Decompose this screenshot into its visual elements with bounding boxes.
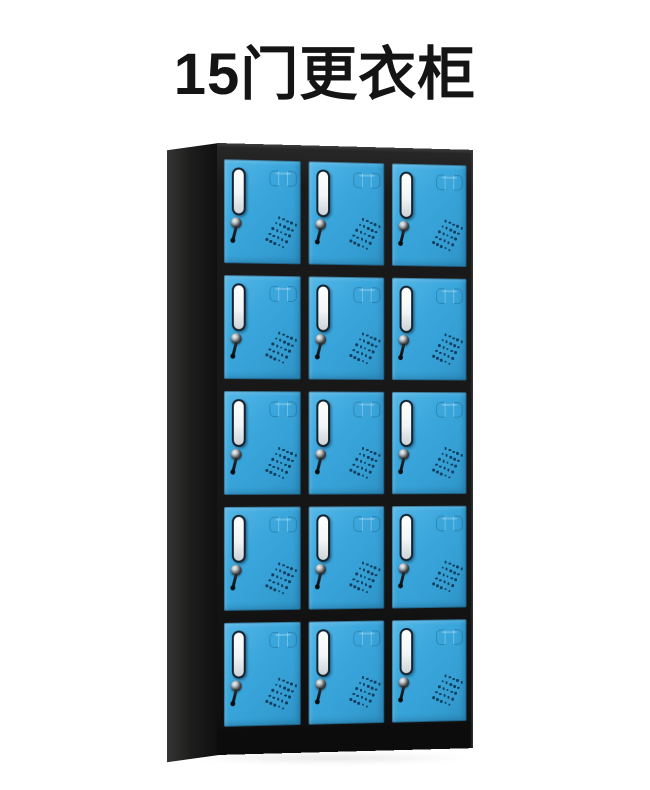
vent-hole-dot [282,333,284,336]
vent-hole-dot [270,471,272,473]
vent-hole-dot [443,581,445,583]
vent-hole-dot [450,690,452,693]
vent-hole-dot [369,471,371,473]
handle-right-bracket-icon [371,173,381,189]
vent-hole-dot [283,341,285,344]
vent-hole-dot [371,687,373,690]
vent-hole-dot [443,240,445,242]
vent-holes [265,332,298,366]
vent-hole-dot [362,245,364,248]
label-slot [400,628,413,675]
vent-hole-dot [270,356,272,359]
vent-hole-dot [349,698,351,701]
vent-hole-dot [453,344,455,346]
vent-hole-dot [358,473,360,475]
vent-hole-dot [269,579,271,582]
vent-hole-dot [368,578,370,580]
vent-hole-dot [278,705,280,708]
vent-hole-dot [442,346,444,348]
vent-hole-dot [370,336,372,338]
label-card [402,288,412,331]
vent-hole-dot [362,676,364,679]
label-card [402,516,412,559]
vent-hole-dot [282,707,284,710]
vent-hole-dot [378,225,380,228]
vent-hole-dot [364,347,366,349]
vent-hole-dot [280,231,282,234]
vent-holes [349,218,382,252]
vent-hole-dot [294,224,296,227]
vent-hole-dot [446,234,448,236]
vent-hole-dot [451,471,453,473]
label-card [318,631,328,675]
recessed-handle-icon [436,288,463,306]
vent-hole-dot [279,454,281,456]
label-slot [400,400,413,447]
vent-hole-dot [442,460,444,462]
vent-hole-dot [364,233,366,236]
vent-hole-dot [284,694,286,697]
vent-hole-dot [435,464,437,466]
vent-hole-dot [276,575,278,578]
key-icon [399,343,405,358]
vent-hole-dot [274,704,276,707]
handle-left-bracket-icon [436,629,446,645]
vent-hole-dot [359,223,361,226]
vent-hole-dot [443,467,445,469]
label-card [234,401,244,445]
locker-cabinet [167,140,483,768]
vent-hole-dot [290,683,292,686]
vent-hole-dot [353,356,355,358]
vent-holes [265,562,298,596]
vent-hole-dot [285,471,287,473]
vent-hole-dot [269,348,271,351]
vent-hole-dot [359,338,361,340]
vent-hole-dot [282,361,284,364]
label-card [318,286,328,330]
vent-hole-dot [360,689,362,692]
handle-left-bracket-icon [436,174,446,190]
vent-hole-dot [365,698,367,701]
vent-hole-dot [441,225,443,227]
vent-hole-dot [446,575,448,577]
vent-hole-dot [274,242,276,245]
vent-hole-dot [457,346,459,348]
vent-hole-dot [356,343,358,345]
vent-hole-dot [369,242,371,245]
vent-hole-dot [283,571,285,574]
locker-door [392,392,467,494]
vent-hole-dot [284,464,286,466]
vent-hole-dot [281,584,283,587]
vent-hole-dot [442,573,444,575]
vent-hole-dot [294,339,296,342]
vent-hole-dot [358,244,360,247]
vent-hole-dot [445,227,447,229]
vent-holes [432,219,464,253]
vent-hole-dot [432,697,434,700]
vent-hole-dot [378,683,380,686]
vent-hole-dot [372,694,374,697]
vent-hole-dot [436,243,438,245]
vent-hole-dot [275,683,277,686]
label-card [234,633,244,677]
vent-hole-dot [278,590,280,593]
vent-hole-dot [442,232,444,234]
key-icon [399,572,405,587]
ground-shadow [185,752,475,764]
vent-hole-dot [448,703,450,706]
vent-hole-dot [281,700,283,703]
vent-hole-dot [375,688,377,691]
vent-hole-dot [440,586,442,588]
vent-hole-dot [281,469,283,471]
vent-hole-dot [358,587,360,589]
label-card [402,630,412,673]
vent-hole-dot [369,356,371,358]
vent-hole-dot [287,573,289,576]
vent-holes [349,676,382,710]
vent-hole-dot [291,690,293,693]
recessed-handle-icon [436,629,463,647]
vent-hole-dot [454,465,456,467]
vent-hole-dot [370,451,372,453]
locker-door [224,159,301,264]
vent-hole-dot [445,682,447,684]
vent-hole-dot [353,578,355,580]
recessed-handle-icon [269,170,296,189]
vent-hole-dot [453,685,455,687]
vent-hole-dot [444,333,446,335]
vent-hole-dot [278,562,280,565]
recessed-handle-icon [353,287,380,305]
vent-hole-dot [440,700,442,703]
handle-left-bracket-icon [353,516,363,532]
vent-holes [432,561,464,595]
vent-hole-dot [290,337,292,340]
vent-hole-dot [436,698,438,701]
vent-hole-dot [436,585,438,587]
vent-hole-dot [353,464,355,466]
vent-hole-dot [444,674,446,676]
vent-hole-dot [276,460,278,462]
recessed-handle-icon [436,516,463,534]
vent-hole-dot [443,694,445,697]
vent-hole-dot [272,458,274,460]
vent-hole-dot [368,349,370,351]
vent-hole-dot [450,236,452,238]
vent-hole-dot [370,565,372,567]
vent-hole-dot [283,687,285,690]
vent-hole-dot [361,467,363,469]
recessed-handle-icon [269,401,296,419]
vent-hole-dot [450,350,452,352]
vent-hole-dot [282,476,284,478]
vent-hole-dot [280,462,282,464]
recessed-handle-icon [269,632,296,650]
vent-hole-dot [366,591,368,593]
vent-hole-dot [365,354,367,356]
vent-hole-dot [360,574,362,576]
vent-hole-dot [272,689,274,692]
vent-hole-dot [449,229,451,231]
vent-hole-dot [265,354,267,357]
vent-hole-dot [270,587,272,590]
vent-hole-dot [374,681,376,684]
vent-holes [432,674,464,708]
vent-hole-dot [290,222,292,225]
vent-hole-dot [451,698,453,701]
vent-hole-dot [278,216,280,219]
vent-hole-dot [446,348,448,350]
label-slot [232,399,246,447]
vent-hole-dot [366,220,368,223]
vent-hole-dot [371,343,373,345]
vent-hole-dot [283,225,285,228]
vent-hole-dot [439,465,441,467]
handle-left-bracket-icon [436,402,446,418]
locker-door [309,276,385,380]
label-card [318,401,328,445]
vent-hole-dot [452,451,454,453]
vent-hole-dot [273,235,275,238]
handle-right-bracket-icon [453,629,463,645]
vent-hole-dot [367,342,369,344]
vent-hole-dot [436,357,438,359]
vent-hole-dot [291,344,293,347]
locker-door [309,620,385,724]
recessed-handle-icon [353,516,380,534]
vent-hole-dot [269,233,271,236]
handle-left-bracket-icon [269,517,279,533]
label-card [234,517,244,561]
vent-hole-dot [452,223,454,225]
vent-hole-dot [369,585,371,587]
key-icon [316,228,322,243]
vent-hole-dot [364,576,366,578]
vent-hole-dot [357,694,359,697]
vent-hole-dot [280,346,282,349]
label-slot [316,514,330,562]
vent-hole-dot [441,453,443,455]
vent-hole-dot [450,577,452,579]
vent-hole-dot [270,240,272,243]
vent-holes [265,447,298,481]
key-icon [316,458,322,473]
vent-hole-dot [362,218,364,221]
vent-hole-dot [285,240,287,243]
vent-hole-dot [277,467,279,469]
vent-hole-dot [451,243,453,245]
handle-left-bracket-icon [269,170,279,186]
vent-hole-dot [278,332,280,335]
vent-hole-dot [353,349,355,351]
label-slot [316,629,330,677]
vent-hole-dot [453,571,455,573]
handle-left-bracket-icon [353,402,363,418]
vent-hole-dot [294,685,296,688]
vent-hole-dot [278,678,280,681]
vent-hole-dot [452,337,454,339]
locker-door [392,506,467,609]
handle-left-bracket-icon [353,631,363,647]
vent-hole-dot [444,220,446,222]
locker-door [224,622,301,727]
vent-hole-dot [291,229,293,232]
vent-hole-dot [439,238,441,240]
vent-hole-dot [286,335,288,338]
vent-hole-dot [367,571,369,573]
vent-hole-dot [287,227,289,230]
vent-hole-dot [276,691,278,694]
vent-hole-dot [362,360,364,362]
handle-right-bracket-icon [453,175,463,191]
vent-hole-dot [357,580,359,582]
vent-hole-dot [371,458,373,460]
label-card [402,174,412,217]
recessed-handle-icon [436,174,463,192]
vent-hole-dot [358,702,360,705]
vent-hole-dot [282,592,284,595]
vent-hole-dot [432,355,434,357]
product-banner: { "page": { "background_color": "#ffffff… [0,0,650,790]
vent-hole-dot [448,449,450,451]
vent-hole-dot [454,238,456,240]
vent-hole-dot [456,225,458,227]
vent-hole-dot [456,679,458,681]
label-slot [316,169,330,217]
label-card [318,516,328,560]
vent-hole-dot [288,350,290,353]
vent-holes [265,216,298,250]
vent-hole-dot [274,588,276,591]
vent-hole-dot [277,583,279,586]
vent-hole-dot [432,469,434,471]
recessed-handle-icon [269,517,296,535]
vent-hole-dot [451,357,453,359]
vent-hole-dot [374,338,376,340]
handle-right-bracket-icon [287,286,297,302]
vent-hole-dot [284,233,286,236]
vent-hole-dot [457,573,459,575]
handle-left-bracket-icon [436,516,446,532]
cabinet-right-edge [470,150,473,748]
vent-hole-dot [286,566,288,569]
vent-hole-dot [272,227,274,230]
vent-hole-dot [374,224,376,227]
locker-door [392,619,467,723]
vent-hole-dot [439,352,441,354]
label-slot [232,167,246,215]
vent-hole-dot [448,676,450,678]
vent-hole-dot [276,229,278,232]
vent-hole-dot [353,693,355,696]
vent-hole-dot [438,458,440,460]
recessed-handle-icon [353,630,380,648]
handle-right-bracket-icon [453,516,463,532]
vent-hole-dot [362,332,364,334]
vent-hole-dot [448,249,450,251]
vent-hole-dot [444,702,446,705]
key-icon [231,573,237,588]
vent-hole-dot [353,586,355,588]
vent-hole-dot [365,240,367,243]
vent-hole-dot [349,240,351,243]
vent-hole-dot [279,570,281,573]
vent-hole-dot [265,700,267,703]
vent-hole-dot [438,685,440,688]
vent-holes [432,333,464,367]
vent-hole-dot [359,567,361,569]
vent-holes [265,677,298,712]
vent-hole-dot [265,585,267,588]
label-card [402,402,412,445]
vent-hole-dot [448,590,450,592]
vent-hole-dot [368,692,370,695]
vent-hole-dot [370,679,372,682]
vent-hole-dot [281,354,283,357]
vent-hole-dot [349,584,351,586]
vent-hole-dot [363,683,365,686]
vent-hole-dot [435,691,437,694]
vent-hole-dot [278,447,280,449]
vent-hole-dot [454,351,456,353]
vent-hole-dot [460,681,462,683]
vent-hole-dot [444,247,446,249]
vent-hole-dot [353,234,355,237]
vent-hole-dot [275,222,277,225]
cabinet-side-panel [167,143,219,762]
locker-door [224,507,301,611]
label-slot [400,286,413,333]
vent-hole-dot [349,355,351,357]
recessed-handle-icon [436,402,463,420]
vent-hole-dot [290,568,292,571]
vent-hole-dot [357,465,359,467]
key-icon [316,687,322,702]
vent-hole-dot [369,700,371,703]
vent-hole-dot [371,229,373,232]
vent-hole-dot [363,454,365,456]
vent-hole-dot [375,345,377,347]
vent-hole-dot [449,683,451,685]
vent-hole-dot [440,359,442,361]
vent-hole-dot [375,231,377,234]
handle-left-bracket-icon [269,286,279,302]
vent-hole-dot [361,696,363,699]
vent-hole-dot [444,447,446,449]
vent-hole-dot [357,351,359,353]
recessed-handle-icon [353,402,380,420]
vent-hole-dot [278,244,280,247]
vent-hole-dot [446,689,448,692]
key-icon [316,573,322,588]
recessed-handle-icon [353,172,380,190]
locker-door [392,163,467,267]
handle-left-bracket-icon [436,288,446,304]
key-icon [231,226,237,241]
vent-hole-dot [452,564,454,566]
handle-right-bracket-icon [371,287,381,303]
vent-hole-dot [449,342,451,344]
vent-hole-dot [285,586,287,589]
vent-hole-dot [282,218,284,221]
vent-hole-dot [275,568,277,571]
vent-hole-dot [283,456,285,458]
vent-hole-dot [362,447,364,449]
vent-hole-dot [448,335,450,337]
